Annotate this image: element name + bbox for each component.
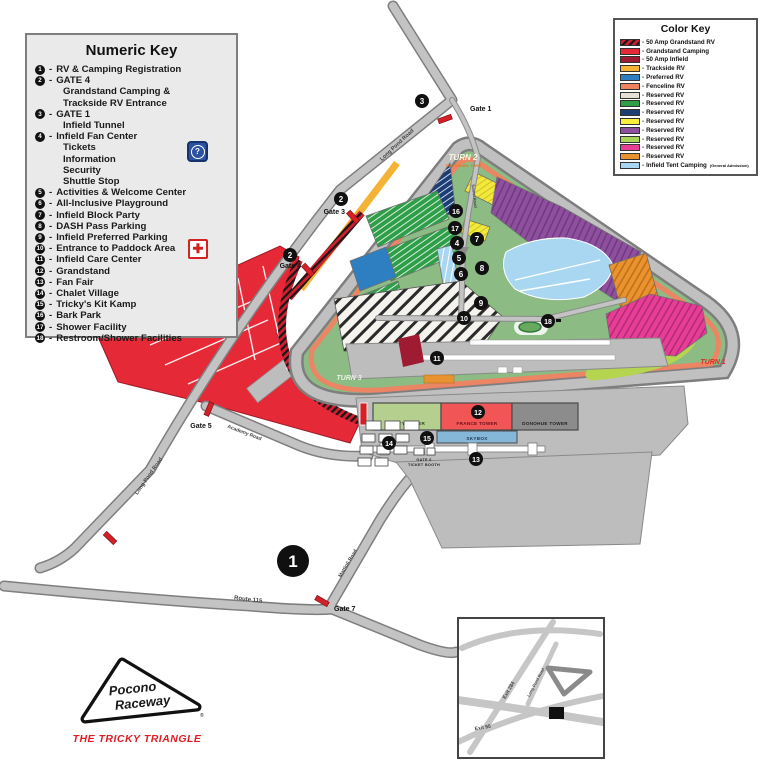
- svg-text:17: 17: [451, 226, 459, 233]
- key-badge: 9: [35, 233, 45, 243]
- turn1-label: TURN 1: [700, 359, 725, 366]
- key-item-3-sub: Infield Tunnel: [63, 120, 228, 131]
- marker-16: 16: [449, 204, 463, 218]
- key-badge: 16: [35, 311, 45, 321]
- gate1-label: Gate 1: [470, 106, 492, 113]
- key-item-12: 12-Grandstand: [35, 266, 228, 277]
- key-badge: 10: [35, 244, 45, 254]
- key-item-2-sub: Trackside RV Entrance: [63, 98, 228, 109]
- color-key-item: -50 Amp Grandstand RV: [620, 38, 751, 47]
- svg-text:5: 5: [457, 254, 462, 263]
- swatch-fenceline-rv: [620, 83, 640, 90]
- marker-11: 11: [430, 351, 444, 365]
- marker-12: 12: [471, 405, 485, 419]
- swatch-reserved-orange: [620, 153, 640, 160]
- key-item-3: 3-GATE 1: [35, 109, 228, 120]
- parcel-orange-small: [424, 375, 454, 383]
- marker-14: 14: [382, 436, 396, 450]
- svg-text:15: 15: [423, 436, 431, 443]
- key-item-6: 6-All-Inclusive Playground: [35, 198, 228, 209]
- gate6-booth-label-2: TICKET BOOTH: [408, 463, 440, 467]
- grandstand-complex: PETTY TOWER FRANCE TOWER DONOHUE TOWER S…: [356, 386, 688, 548]
- svg-text:7: 7: [475, 235, 480, 244]
- marker-13: 13: [469, 452, 483, 466]
- key-badge: 7: [35, 210, 45, 220]
- tent-camping-area: [503, 238, 612, 300]
- key-item-7: 7-Infield Block Party: [35, 210, 228, 221]
- key-item-4-sub: Security: [63, 165, 228, 176]
- marker-6: 6: [454, 267, 468, 281]
- color-key-item: -50 Amp Infield: [620, 56, 751, 65]
- color-key-panel: Color Key -50 Amp Grandstand RV -Grandst…: [613, 18, 758, 176]
- key-badge: 15: [35, 300, 45, 310]
- inset-location-square: [549, 707, 564, 719]
- key-item-18: 18-Restroom/Shower Facilities: [35, 333, 228, 344]
- svg-text:18: 18: [544, 319, 552, 326]
- swatch-reserved-green: [620, 100, 640, 107]
- svg-text:8: 8: [480, 264, 485, 273]
- svg-text:12: 12: [474, 410, 482, 417]
- locator-inset: Exit 284 Long Pond Road Exit 95: [458, 618, 604, 758]
- key-item-8: 8-DASH Pass Parking: [35, 221, 228, 232]
- france-tower-label: FRANCE TOWER: [456, 421, 497, 426]
- pocono-raceway-logo: Pocono Raceway ® THE TRICKY TRIANGLE: [73, 662, 204, 745]
- swatch-infield-tent: [620, 162, 640, 169]
- color-key-item: -Reserved RV: [620, 117, 751, 126]
- key-badge: 3: [35, 109, 45, 119]
- key-item-15: 15-Tricky's Kit Kamp: [35, 299, 228, 310]
- svg-text:11: 11: [433, 356, 441, 363]
- svg-text:1: 1: [288, 552, 297, 571]
- color-key-item: -Reserved RV: [620, 100, 751, 109]
- marker-2-gate3: 2: [334, 192, 348, 206]
- key-badge: 12: [35, 266, 45, 276]
- infield-green-oval: [519, 322, 541, 332]
- color-key-item: -Infield Tent Camping(General Admission): [620, 161, 751, 170]
- skybox-label: SKYBOX: [466, 436, 488, 441]
- numeric-key-title: Numeric Key: [35, 42, 228, 59]
- color-key-item: -Reserved RV: [620, 144, 751, 153]
- key-item-5: 5-Activities & Welcome Center: [35, 187, 228, 198]
- swatch-trackside-rv: [620, 65, 640, 72]
- svg-text:13: 13: [472, 457, 480, 464]
- gate3-label: Gate 3: [324, 209, 346, 216]
- color-key-item: -Grandstand Camping: [620, 47, 751, 56]
- turn3-label: TURN 3: [336, 375, 361, 382]
- logo-registered: ®: [200, 712, 204, 719]
- swatch-reserved-gray: [620, 92, 640, 99]
- key-item-2: 2-GATE 4: [35, 75, 228, 86]
- key-item-16: 16-Bark Park: [35, 310, 228, 321]
- key-badge: 5: [35, 188, 45, 198]
- turn2-label: TURN 2: [449, 153, 478, 162]
- swatch-50amp-grandstand: [620, 39, 640, 46]
- key-badge: 14: [35, 289, 45, 299]
- donohue-tower-label: DONOHUE TOWER: [522, 421, 568, 426]
- marker-5: 5: [452, 251, 466, 265]
- key-item-2-sub: Grandstand Camping &: [63, 86, 228, 97]
- key-item-14: 14-Chalet Village: [35, 288, 228, 299]
- marker-8: 8: [475, 261, 489, 275]
- svg-text:3: 3: [420, 97, 425, 106]
- key-item-17: 17-Shower Facility: [35, 322, 228, 333]
- marker-2-gate4: 2: [283, 248, 297, 262]
- gate7-label: Gate 7: [334, 606, 356, 613]
- swatch-preferred-rv: [620, 74, 640, 81]
- key-item-4-sub: Shuttle Stop: [63, 176, 228, 187]
- key-badge: 4: [35, 132, 45, 142]
- color-key-item: -Reserved RV: [620, 135, 751, 144]
- information-icon: ?: [187, 141, 208, 162]
- key-badge: 6: [35, 199, 45, 209]
- key-badge: 2: [35, 76, 45, 86]
- svg-text:14: 14: [385, 441, 393, 448]
- key-badge: 17: [35, 322, 45, 332]
- color-key-title: Color Key: [620, 23, 751, 35]
- svg-text:10: 10: [460, 316, 468, 323]
- logo-tagline: THE TRICKY TRIANGLE: [73, 733, 202, 745]
- gate5-label: Gate 5: [190, 423, 212, 430]
- swatch-reserved-magenta: [620, 144, 640, 151]
- svg-text:16: 16: [452, 209, 460, 216]
- marker-1-large: 1: [277, 545, 309, 577]
- svg-text:2: 2: [288, 251, 293, 260]
- color-key-item: -Reserved RV: [620, 108, 751, 117]
- swatch-reserved-purple: [620, 127, 640, 134]
- key-badge: 11: [35, 255, 45, 265]
- marker-7: 7: [470, 232, 484, 246]
- color-key-item: -Fenceline RV: [620, 82, 751, 91]
- marker-17: 17: [448, 221, 462, 235]
- swatch-50amp-infield: [620, 56, 640, 63]
- marker-4: 4: [450, 236, 464, 250]
- key-badge: 13: [35, 277, 45, 287]
- svg-text:6: 6: [459, 270, 464, 279]
- swatch-reserved-navy: [620, 109, 640, 116]
- key-badge: 1: [35, 65, 45, 75]
- marker-10: 10: [457, 311, 471, 325]
- color-key-item: -Trackside RV: [620, 64, 751, 73]
- first-aid-icon: ✚: [188, 239, 208, 259]
- marker-9: 9: [474, 296, 488, 310]
- long-pond-road-label-upper: Long Pond Road: [379, 128, 415, 162]
- gate4-label: Gate 4: [280, 263, 302, 270]
- color-key-item: -Reserved RV: [620, 126, 751, 135]
- color-key-item: -Preferred RV: [620, 73, 751, 82]
- swatch-grandstand-camping: [620, 48, 640, 55]
- svg-text:4: 4: [455, 239, 460, 248]
- color-key-item: -Reserved RV: [620, 152, 751, 161]
- marker-3: 3: [415, 94, 429, 108]
- marker-15: 15: [420, 431, 434, 445]
- color-key-item: -Reserved RV: [620, 91, 751, 100]
- svg-text:9: 9: [479, 299, 484, 308]
- key-item-1: 1-RV & Camping Registration: [35, 64, 228, 75]
- swatch-reserved-yellow: [620, 118, 640, 125]
- key-item-13: 13-Fan Fair: [35, 277, 228, 288]
- svg-text:2: 2: [339, 195, 344, 204]
- swatch-reserved-lightgreen: [620, 136, 640, 143]
- key-badge: 8: [35, 221, 45, 231]
- numeric-key-panel: Numeric Key 1-RV & Camping Registration …: [25, 33, 238, 338]
- turn2-sub-label: THE TUNNEL TURN: [445, 164, 481, 168]
- gate6-booth-label-1: GATE 6: [416, 458, 431, 462]
- key-badge: 18: [35, 333, 45, 343]
